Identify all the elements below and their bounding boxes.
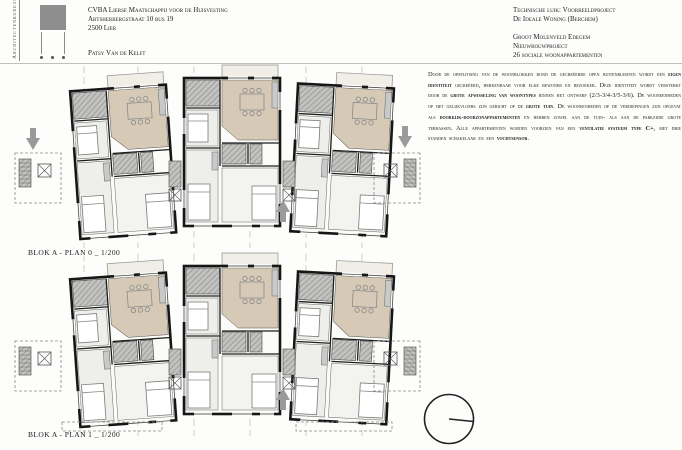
project-kind: Nieuwbouwproject xyxy=(513,42,602,51)
project-company: De Ideale Woning (Berchem) xyxy=(513,15,615,24)
unit-plan xyxy=(184,253,280,414)
client-name: CVBA Lierse Maatschappij voor de Huisves… xyxy=(88,6,228,15)
north-needle xyxy=(449,419,474,422)
floor-plan-0 xyxy=(0,64,435,256)
unit-plan xyxy=(69,72,176,239)
logo-dot xyxy=(51,56,54,59)
office-logo xyxy=(40,5,66,30)
presentation-sheet: Architectenbureau CVBA Lierse Maatschapp… xyxy=(0,0,682,450)
unit-plan xyxy=(69,260,176,427)
project-phase: Technische luik: Voorbeeldproject xyxy=(513,6,615,15)
project-description: Door de opsplitsing van de woonblokken r… xyxy=(428,70,681,145)
left-stair-wing xyxy=(15,153,61,203)
entrance-arrow-icon xyxy=(26,128,40,150)
client-block: CVBA Lierse Maatschappij voor de Huisves… xyxy=(88,6,228,33)
unit-plan xyxy=(184,65,280,226)
architect-office-vertical-label: Architectenbureau xyxy=(12,0,20,61)
project-type-block: Technische luik: Voorbeeldproject De Ide… xyxy=(513,6,615,24)
client-street: Abtsherbergstraat 10 bus 19 xyxy=(88,15,228,24)
project-site: Groot Molenveld Edegem xyxy=(513,33,602,42)
plan-1-label: BLOK A - PLAN 1 _ 1/200 xyxy=(28,430,120,439)
floor-plan-1 xyxy=(0,252,435,444)
client-city: 2500 Lier xyxy=(88,24,228,33)
logo-dot xyxy=(40,56,43,59)
logo-line-right xyxy=(64,32,65,54)
client-contact: Patsy Van de Kelft xyxy=(88,49,145,58)
north-indicator xyxy=(420,390,480,450)
unit-plan xyxy=(290,71,394,237)
logo-dot xyxy=(62,56,65,59)
project-units: 26 sociale woonappartementen xyxy=(513,51,602,60)
unit-plan xyxy=(290,259,394,425)
logo-line-left xyxy=(41,32,42,54)
entrance-arrow-icon xyxy=(398,126,412,148)
left-stair-wing xyxy=(15,341,61,391)
project-site-block: Groot Molenveld Edegem Nieuwbouwproject … xyxy=(513,33,602,60)
